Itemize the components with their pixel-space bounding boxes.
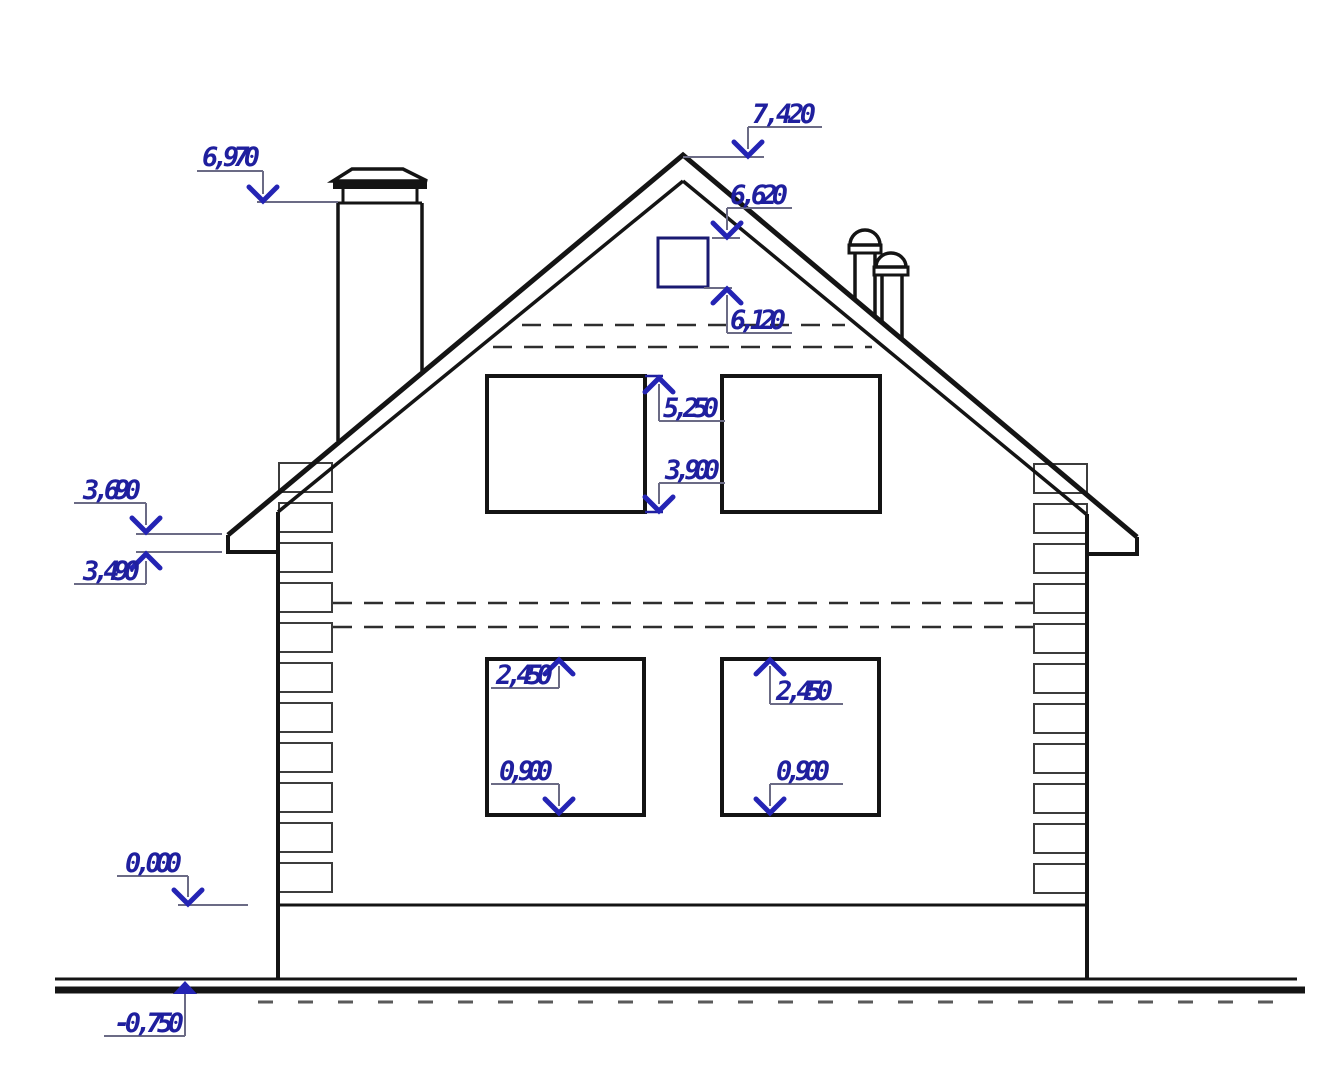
dimension-6120: 6,120	[704, 288, 792, 336]
quoin-block-right	[1034, 704, 1087, 733]
quoin-block-right	[1034, 864, 1087, 893]
dimension-0000: 0,000	[117, 848, 248, 905]
chimney-cap-band	[333, 181, 427, 189]
quoin-block-right	[1034, 744, 1087, 773]
quoin-block-left	[279, 743, 332, 772]
dimension-label: 3,490	[82, 556, 140, 587]
quoin-block-right	[1034, 624, 1087, 653]
quoin-block-right	[1034, 584, 1087, 613]
dimension-label: 2,450	[495, 660, 553, 691]
dimension-5250: 5,250	[645, 376, 725, 424]
left-eave-fascia	[228, 535, 278, 552]
quoin-block-left	[279, 823, 332, 852]
elevation-drawing-canvas: 7,4206,9706,6206,1205,2503,9003,6903,490…	[0, 0, 1323, 1080]
right-eave-fascia	[1087, 537, 1137, 554]
quoin-block-left	[279, 543, 332, 572]
dimension-label: 6,970	[202, 142, 260, 173]
upper-left-window	[487, 376, 645, 512]
vent-dome-cap	[850, 230, 880, 245]
vent-dome-cap	[876, 253, 906, 267]
quoin-block-right	[1034, 664, 1087, 693]
dimension-label: 0,900	[776, 756, 830, 787]
dimension-label: 6,120	[730, 305, 786, 336]
dimension-6970: 6,970	[197, 142, 338, 202]
attic-window	[658, 238, 708, 287]
quoin-block-left	[279, 583, 332, 612]
dimension-3900: 3,900	[645, 455, 725, 512]
dimension-3690: 3,690	[74, 475, 222, 534]
upper-right-window	[722, 376, 880, 512]
chimney-cap	[333, 169, 427, 181]
quoin-block-left	[279, 863, 332, 892]
dimension-label: 3,900	[664, 455, 720, 486]
dimension-label: 5,250	[663, 393, 719, 424]
quoin-block-left	[279, 663, 332, 692]
dimension-3490: 3,490	[74, 552, 222, 587]
quoin-block-left	[279, 623, 332, 652]
dimension-label: 2,450	[775, 676, 833, 707]
quoin-block-left	[279, 703, 332, 732]
dimension-label: 3,690	[82, 475, 141, 506]
dimension-7420: 7,420	[683, 99, 822, 157]
house-elevation-drawing: 7,4206,9706,6206,1205,2503,9003,6903,490…	[0, 0, 1323, 1080]
dimension-label: -0,750	[114, 1008, 184, 1039]
quoin-block-right	[1034, 544, 1087, 573]
quoin-block-right	[1034, 784, 1087, 813]
quoin-block-left	[279, 503, 332, 532]
dimension-label: 0,000	[125, 848, 182, 879]
corner-quoins	[279, 463, 1087, 893]
quoin-block-right	[1034, 824, 1087, 853]
dimension-label: 6,620	[730, 180, 788, 211]
vent-pipe-2	[874, 253, 908, 339]
dimension-label: 7,420	[752, 99, 816, 130]
dimension-label: 0,900	[499, 756, 553, 787]
quoin-block-left	[279, 783, 332, 812]
